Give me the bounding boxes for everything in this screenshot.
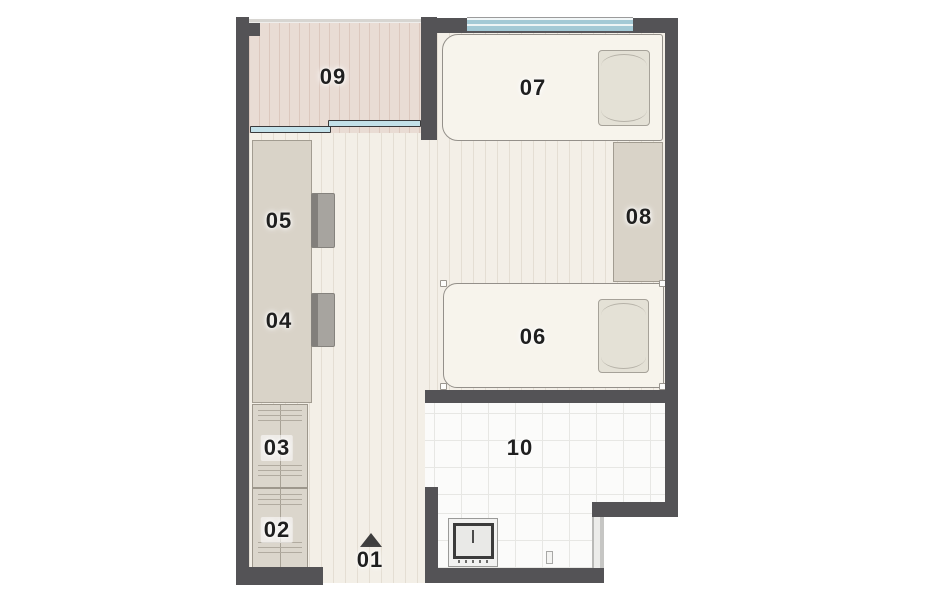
wall-bathroom-notch <box>592 502 678 517</box>
entry-arrow-icon <box>360 533 382 547</box>
bedroom-window <box>467 17 633 33</box>
sliding-door-panel-right <box>328 120 421 127</box>
bed-06-post-top-left <box>440 280 447 287</box>
wall-bathroom-top <box>425 390 678 403</box>
stool-04 <box>311 293 335 347</box>
faucet-icon <box>472 530 474 543</box>
wall-balcony-right <box>421 17 437 140</box>
room-label-05: 05 <box>266 208 292 234</box>
room-label-08: 08 <box>626 204 652 230</box>
bed-06-pillow <box>598 299 649 373</box>
cabinet-02-vents-top <box>258 494 302 509</box>
room-label-04: 04 <box>266 308 292 334</box>
room-label-10: 10 <box>507 435 533 461</box>
balcony-railing <box>249 17 421 23</box>
room-label-03: 03 <box>261 435 293 461</box>
bed-06-post-bottom-left <box>440 383 447 390</box>
room-label-07: 07 <box>520 75 546 101</box>
bed-07-pillow <box>598 50 650 126</box>
cabinet-03-vents-bottom <box>258 465 302 480</box>
wall-bathroom-bottom <box>425 568 604 583</box>
shower-glass-panel <box>592 517 604 568</box>
room-label-09: 09 <box>320 64 346 90</box>
wall-bottom-left <box>236 567 323 585</box>
wall-top-middle <box>437 18 467 33</box>
wall-right <box>665 18 678 517</box>
floor-drain <box>546 551 553 564</box>
floor-plan: 01 02 03 04 05 06 07 08 09 10 <box>0 0 928 605</box>
sliding-door-panel-left <box>250 126 331 133</box>
cabinet-03-vents-top <box>258 410 302 425</box>
shower-valve-marks <box>458 560 490 563</box>
bathroom-floor-upper <box>425 403 665 503</box>
cabinet-02-vents-bottom <box>258 542 302 557</box>
room-label-02: 02 <box>261 517 293 543</box>
kitchen-counter <box>252 140 312 403</box>
room-label-01: 01 <box>357 547 383 573</box>
wall-left <box>236 17 249 585</box>
room-label-06: 06 <box>520 324 546 350</box>
stool-05 <box>311 193 335 248</box>
